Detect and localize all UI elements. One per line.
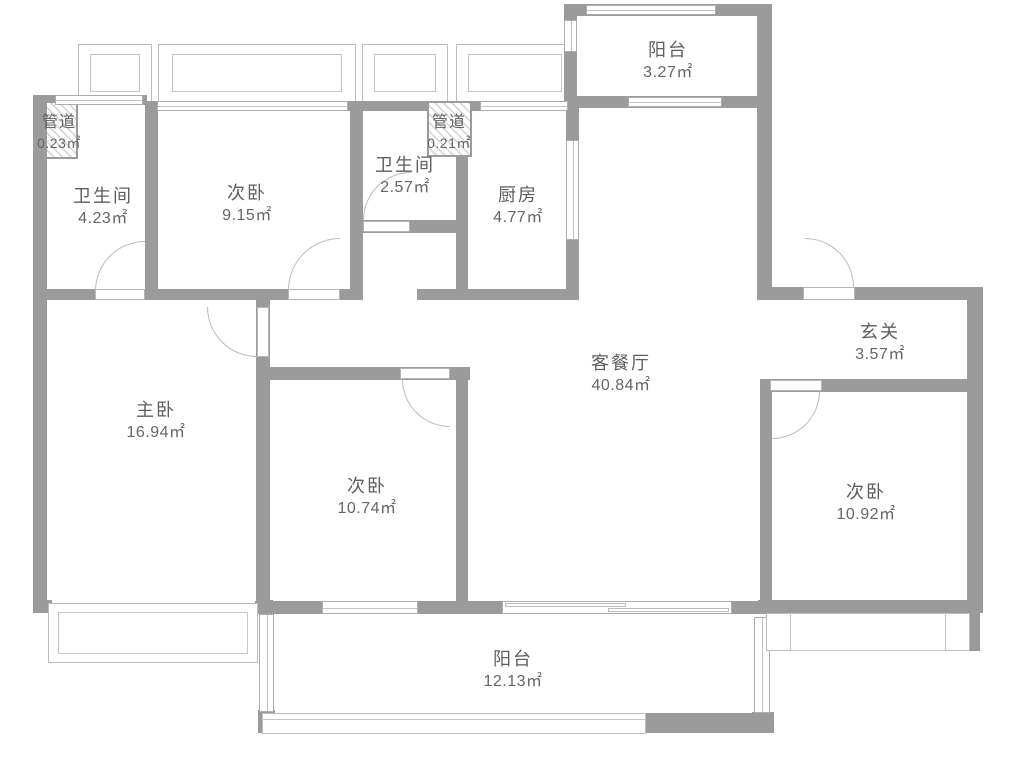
wall-balcony-bottom [644,713,756,733]
wall-outer-left [33,95,47,610]
room-label-bath-left: 卫生间 4.23㎡ [43,184,163,230]
bay-window [766,613,970,651]
window-balcony-door [628,97,722,107]
door-opening [363,221,410,232]
room-area: 3.27㎡ [608,62,728,84]
room-area: 3.57㎡ [820,344,940,366]
door-swing-arc [95,241,145,291]
room-area: 9.15㎡ [187,205,307,227]
window [55,95,143,105]
room-area: 12.13㎡ [453,671,573,693]
door-opening [400,368,450,379]
room-label-master-bedroom: 主卧 16.94㎡ [96,398,216,444]
door-opening [288,289,340,300]
room-name: 卫生间 [345,153,465,177]
room-label-duct-mid: 管道 0.21㎡ [389,112,509,152]
bay-window [78,44,152,102]
wall-segment [256,600,273,613]
window [564,20,577,52]
door-opening [257,307,269,357]
room-name: 管道 [389,112,509,134]
room-name: 卫生间 [43,184,163,208]
door-opening [770,380,822,391]
wall-segment [456,367,468,601]
room-area: 4.23㎡ [43,208,163,230]
sliding-door-panel [505,603,626,607]
bay-window-inner [90,54,140,92]
room-name: 次卧 [187,181,307,205]
room-area: 4.77㎡ [458,207,578,229]
room-area: 0.21㎡ [389,134,509,153]
sliding-door [502,601,732,614]
wall-outer-right [967,287,983,613]
door-swing-arc [288,238,340,290]
room-name: 玄关 [820,320,940,344]
door-swing-arc [772,391,820,439]
window [480,101,568,111]
bay-window [362,44,448,102]
entry-door-swing-arc [805,238,854,287]
room-name: 阳台 [608,38,728,62]
wall-segment [363,101,430,111]
room-name: 主卧 [96,398,216,422]
wall-segment [752,712,774,733]
window [259,614,274,712]
bay-window-inner [172,54,342,92]
room-label-living-dining: 客餐厅 40.84㎡ [551,351,691,397]
room-label-bedroom-top: 次卧 9.15㎡ [187,181,307,227]
room-area: 0.23㎡ [9,134,109,153]
room-label-bedroom-mid: 次卧 10.74㎡ [307,474,427,520]
entry-door-opening [803,287,855,300]
room-label-balcony-top: 阳台 3.27㎡ [608,38,728,84]
bay-window [158,44,356,102]
window [586,5,716,15]
room-area: 40.84㎡ [551,375,691,397]
room-label-duct-top-left: 管道 0.23㎡ [9,112,109,152]
bay-window-inner [468,54,562,92]
door-swing-arc [207,307,257,357]
wall-segment [758,600,980,613]
balcony-railing [262,713,646,734]
window [322,601,418,614]
room-label-balcony-bottom: 阳台 12.13㎡ [453,647,573,693]
wall-segment [350,101,363,300]
sliding-door-panel [608,608,729,612]
balcony-railing-line [262,719,646,720]
room-name: 次卧 [806,480,926,504]
room-area: 2.57㎡ [345,177,465,199]
room-area: 16.94㎡ [96,422,216,444]
bay-window-inner [58,612,248,654]
bay-window-inner [790,613,946,651]
room-area: 10.74㎡ [307,498,427,520]
room-area: 10.92㎡ [806,504,926,526]
window [157,101,348,111]
wall-segment [417,289,578,300]
room-name: 客餐厅 [551,351,691,375]
room-label-bath-mid: 卫生间 2.57㎡ [345,153,465,199]
room-name: 厨房 [458,183,578,207]
floor-plan-canvas: 管道 0.23㎡ 卫生间 4.23㎡ 次卧 9.15㎡ 卫生间 2.57㎡ 管道… [0,0,1024,776]
wall-segment [760,379,772,603]
room-label-entry: 玄关 3.57㎡ [820,320,940,366]
bay-window [456,44,574,102]
bay-window-inner [374,54,436,92]
wall-entry-top [762,287,983,300]
wall-segment [757,4,772,300]
room-name: 阳台 [453,647,573,671]
room-label-bedroom-right: 次卧 10.92㎡ [806,480,926,526]
room-label-kitchen: 厨房 4.77㎡ [458,183,578,229]
room-name: 管道 [9,112,109,134]
room-name: 次卧 [307,474,427,498]
door-swing-arc [402,379,450,427]
bay-window [48,603,258,663]
